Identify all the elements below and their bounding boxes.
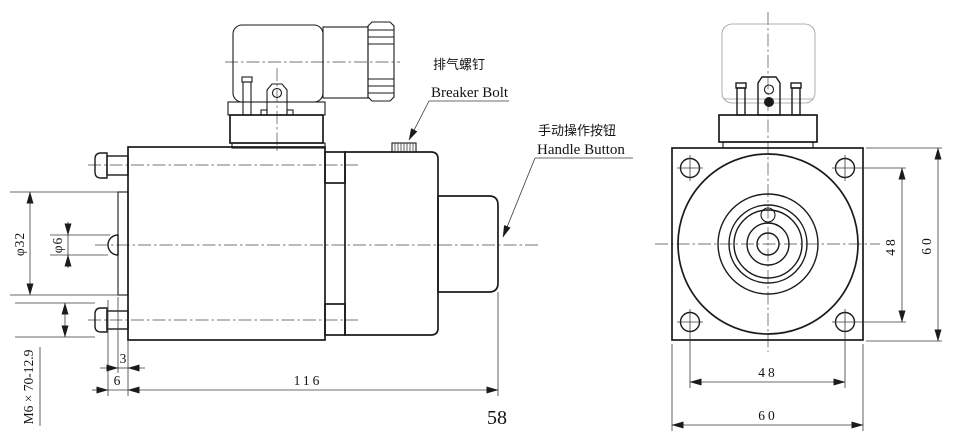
main-body	[128, 147, 325, 340]
dimension-6: 6	[92, 373, 128, 390]
mounting-bolt-top	[95, 153, 128, 178]
dimension-3: 3	[100, 351, 145, 368]
cable-gland	[368, 22, 394, 101]
coil-base	[230, 115, 323, 143]
dim-48h-label: 48	[758, 365, 778, 380]
breaker-bolt-label-en: Breaker Bolt	[431, 85, 509, 101]
drawing-canvas: φ32 φ6 M6 × 70-12.9 3	[0, 0, 965, 440]
dim-60h-label: 60	[758, 408, 778, 423]
tab-top	[325, 152, 345, 183]
corner-holes	[677, 155, 906, 388]
breaker-bolt-label-cn: 排气螺钉	[433, 57, 485, 72]
left-view: φ32 φ6 M6 × 70-12.9 3	[10, 22, 633, 429]
dim-48v-label: 48	[883, 236, 898, 256]
bolt-spec-label: M6 × 70-12.9	[21, 349, 36, 424]
connector-body	[228, 22, 394, 148]
front-flange	[118, 192, 128, 295]
connector-pins-side	[242, 77, 293, 115]
dim-116-label: 116	[294, 373, 323, 388]
dim-6-label: 6	[114, 373, 121, 388]
dimension-60-vertical: 60	[866, 148, 942, 341]
dimension-116: 116	[128, 373, 498, 390]
dimension-60-horizontal: 60	[672, 344, 863, 431]
right-view: 48 60 48 60	[655, 12, 942, 431]
callout-breaker-bolt: 排气螺钉 Breaker Bolt	[409, 57, 509, 140]
dim-phi6-label: φ6	[50, 237, 65, 254]
handle-button-label-cn: 手动操作按钮	[538, 123, 616, 138]
leader-line	[503, 158, 535, 237]
dimension-bolt-spec: M6 × 70-12.9	[15, 303, 95, 426]
technical-drawing: φ32 φ6 M6 × 70-12.9 3	[0, 0, 965, 440]
connector-ghost-outline	[722, 24, 815, 103]
dim-phi32-label: φ32	[12, 232, 27, 256]
dim-58-label: 58	[487, 407, 507, 429]
breaker-bolt-shape	[392, 143, 416, 152]
ground-dot	[764, 97, 774, 107]
centerlines-right	[655, 12, 880, 352]
handle-button-label-en: Handle Button	[537, 142, 625, 158]
gland-ribs	[368, 30, 394, 93]
connector-pins-front	[736, 77, 801, 115]
handle-button-shape	[438, 196, 498, 292]
dim-3-label: 3	[120, 351, 127, 366]
dim-60v-label: 60	[919, 235, 934, 255]
leader-line	[409, 101, 429, 140]
tab-bottom	[325, 304, 345, 335]
solenoid-tube	[345, 152, 438, 335]
dimension-48-horizontal: 48	[690, 365, 845, 382]
dimension-48-vertical: 48	[883, 168, 902, 322]
callout-handle-button: 手动操作按钮 Handle Button	[503, 123, 633, 237]
